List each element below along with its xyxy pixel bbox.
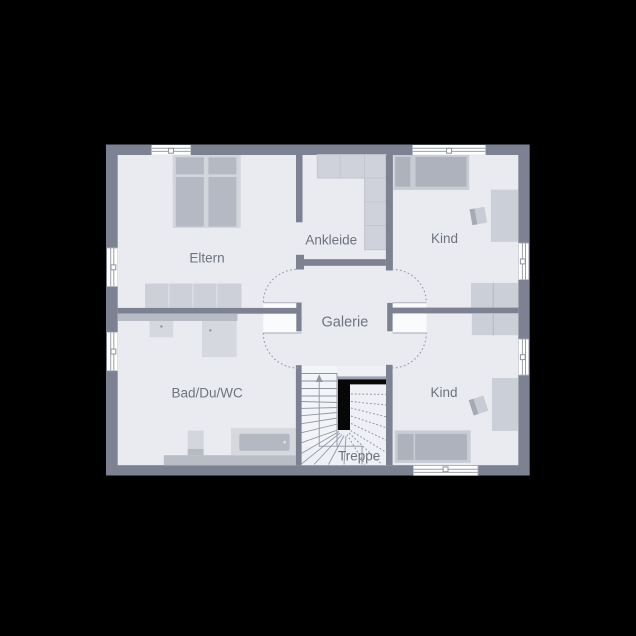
- svg-text:Kind: Kind: [431, 231, 458, 246]
- svg-text:Galerie: Galerie: [322, 314, 369, 330]
- svg-text:Kind: Kind: [430, 385, 457, 400]
- svg-text:Bad/Du/WC: Bad/Du/WC: [171, 385, 243, 400]
- svg-text:Eltern: Eltern: [189, 251, 224, 266]
- svg-text:Treppe: Treppe: [338, 449, 380, 464]
- svg-text:Ankleide: Ankleide: [305, 232, 357, 247]
